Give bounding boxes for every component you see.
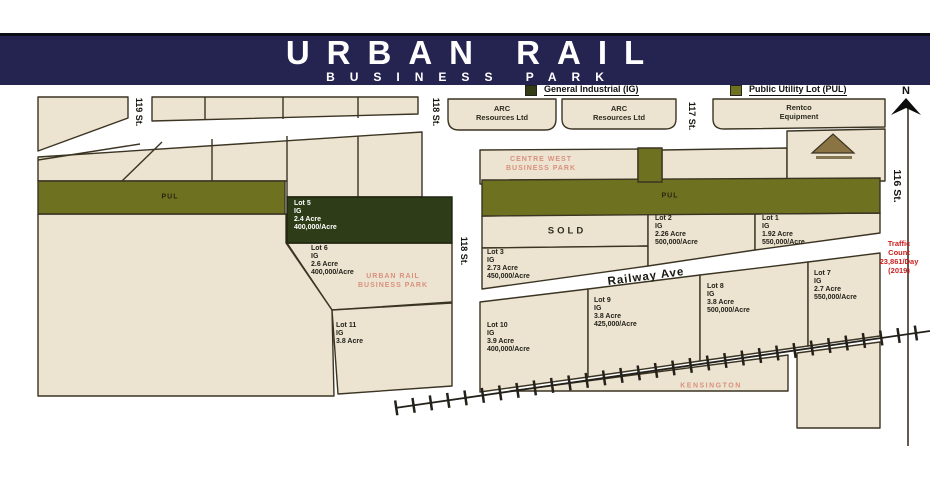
parcel-lot-11 [332,303,452,394]
pul-label-east: PUL [662,193,679,200]
lot-3-info: Lot 3IG 2.73 Acre450,000/Acre [487,249,530,281]
parcel-nw [38,97,128,151]
parcel-top-band [152,97,418,121]
street-label-117: 117 St. [687,102,697,131]
lot-11-info: Lot 11IG 3.8 Acre [336,322,363,346]
rentco-label: Rentco Equipment [780,103,819,121]
lot-8-info: Lot 8IG 3.8 Acre500,000/Acre [707,283,750,315]
urban-rail-flyer: URBAN RAIL BUSINESS PARK General Industr… [0,0,930,500]
street-label-119: 119 St. [134,98,144,127]
north-arrow-icon [891,98,921,115]
lot-9-info: Lot 9IG 3.8 Acre425,000/Acre [594,297,637,329]
traffic-count-label: Traffic Count 23,861/Day (2019) [880,239,919,275]
lot-7-info: Lot 7IG 2.7 Acre550,000/Acre [814,270,857,302]
lot-10-info: Lot 10IG 3.9 Acre400,000/Acre [487,322,530,354]
arc-resources-label-2: ARC Resources Ltd [593,104,645,122]
pul-label-west: PUL [162,194,179,201]
pul-strip-east [482,178,880,216]
lot-2-info: Lot 2IG 2.26 Acre500,000/Acre [655,215,698,247]
street-label-118-mid: 118 St. [459,237,469,266]
arc-resources-label-1: ARC Resources Ltd [476,104,528,122]
sold-label: SOLD [548,226,586,237]
parcel-bottom-right [797,342,880,428]
pul-connector [638,148,662,182]
parcel-mid-east [662,148,787,181]
kensington-label: KENSINGTON [680,382,742,391]
street-label-116: 116 St. [891,169,903,202]
street-label-118-top: 118 St. [431,98,441,127]
lot-5-info: Lot 5IG 2.4 Acre400,000/Acre [294,200,337,232]
centre-west-label: CENTRE WEST BUSINESS PARK [506,155,576,173]
urban-rail-park-label: URBAN RAIL BUSINESS PARK [358,272,428,290]
lot-1-info: Lot 1IG 1.92 Acre550,000/Acre [762,215,805,247]
lot-6-info: Lot 6IG 2.6 Acre400,000/Acre [311,245,354,277]
